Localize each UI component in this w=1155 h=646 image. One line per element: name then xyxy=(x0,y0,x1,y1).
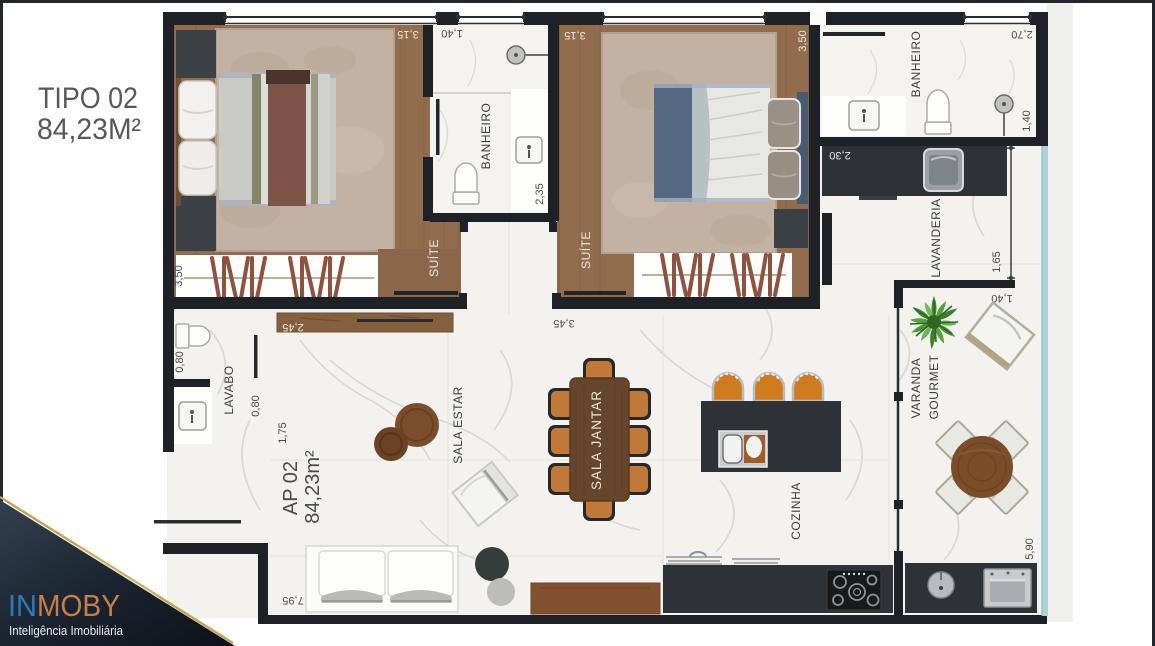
svg-text:BANHEIRO: BANHEIRO xyxy=(479,103,493,170)
svg-text:1,65: 1,65 xyxy=(991,251,1003,272)
svg-text:2,30: 2,30 xyxy=(829,149,850,161)
svg-text:VARANDA: VARANDA xyxy=(909,358,923,419)
svg-text:0,80: 0,80 xyxy=(174,351,186,372)
svg-text:SALA ESTAR: SALA ESTAR xyxy=(451,386,465,463)
svg-text:84,23M²: 84,23M² xyxy=(37,113,141,146)
svg-text:1,40: 1,40 xyxy=(441,27,462,39)
svg-text:AP 02: AP 02 xyxy=(280,461,302,515)
svg-text:Inteligência Imobiliária: Inteligência Imobiliária xyxy=(9,624,123,638)
svg-text:LAVANDERIA: LAVANDERIA xyxy=(929,198,943,277)
svg-text:84,23m²: 84,23m² xyxy=(302,450,324,524)
svg-text:1,40: 1,40 xyxy=(991,292,1012,304)
svg-text:0,80: 0,80 xyxy=(250,395,262,416)
svg-text:7,95: 7,95 xyxy=(282,594,303,606)
svg-text:3,50: 3,50 xyxy=(797,30,809,51)
svg-text:MOBY: MOBY xyxy=(37,588,120,623)
svg-text:3,15: 3,15 xyxy=(397,28,418,40)
svg-text:2,35: 2,35 xyxy=(534,183,546,204)
svg-text:SUÍTE: SUÍTE xyxy=(578,231,593,269)
svg-text:SALA JANTAR: SALA JANTAR xyxy=(589,390,604,490)
svg-text:BANHEIRO: BANHEIRO xyxy=(909,31,923,98)
svg-text:3,45: 3,45 xyxy=(553,317,574,329)
svg-text:1,40: 1,40 xyxy=(1021,110,1033,131)
svg-text:TIPO 02: TIPO 02 xyxy=(38,82,138,115)
svg-text:LAVABO: LAVABO xyxy=(222,365,236,414)
svg-text:3,15: 3,15 xyxy=(564,29,585,41)
svg-text:2,45: 2,45 xyxy=(282,321,303,333)
svg-text:GOURMET: GOURMET xyxy=(927,354,941,419)
svg-text:5,90: 5,90 xyxy=(1024,538,1036,559)
svg-text:2,70: 2,70 xyxy=(1011,28,1032,40)
svg-text:1,75: 1,75 xyxy=(277,422,289,443)
svg-text:IN: IN xyxy=(8,588,37,623)
svg-text:COZINHA: COZINHA xyxy=(789,482,803,540)
svg-text:SUÍTE: SUÍTE xyxy=(426,239,441,277)
svg-text:3,50: 3,50 xyxy=(173,265,185,286)
